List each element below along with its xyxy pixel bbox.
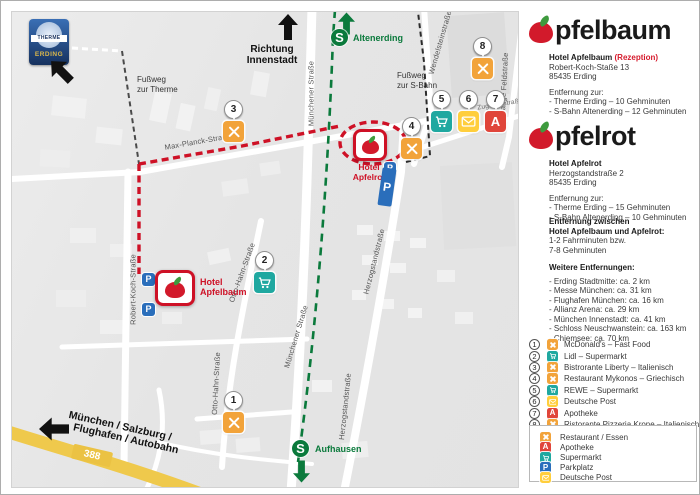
parking-icon: P [142,303,155,316]
legend-row: P Parkplatz [540,463,696,473]
pharmacy-icon: A [485,111,506,132]
mail-icon [458,111,479,132]
street-label: Robert-Koch-Straße [129,245,138,335]
sbahn-station-altenerding-label: Altenerding [353,33,403,43]
mail-icon [540,472,551,483]
footpath-therme-dashed-2 [122,51,139,164]
legend-row: 7 A Apotheke [529,407,700,418]
poi-number-pin: 1 [224,391,243,410]
restaurant-icon [223,412,244,433]
street-label: Münchener Straße [307,49,316,139]
hotel-city: 85435 Erding [549,72,699,82]
legend-row: 3 Bistrorante Liberty – Italienisch [529,362,700,373]
distance-item: - Erding Stadtmitte: ca. 2 km [549,277,699,287]
poi-marker-3: 3 [223,100,244,142]
map-type-legend: Restaurant / Essen A Apotheke Supermarkt… [529,425,697,482]
legend-row: 2 Lidl – Supermarkt [529,350,700,361]
poi-marker-8: 8 [472,37,493,79]
apple-icon [362,137,379,154]
sidebar-numbered-legend: 1 McDonald's – Fast Food 2 Lidl – Superm… [529,339,700,430]
legend-row: 1 McDonald's – Fast Food [529,339,700,350]
apfelbaum-logo-text: pfelbaum [555,17,671,43]
more-distances-heading: Weitere Entfernungen: [549,263,699,273]
hotel-name: Hotel Apfelbaum [549,53,612,62]
therme-logo-text: THERME [31,35,67,42]
hotel-map-flyer: THERME ERDING Richtung Innenstadt S Alte… [0,0,700,495]
sbahn-badge-altenerding: S [331,29,348,46]
legend-row: 5 REWE – Supermarkt [529,385,700,396]
poi-number-pin: 5 [432,90,451,109]
hotel-apfelbaum-label: Hotel Apfelbaum [200,277,247,297]
apple-icon [529,17,553,43]
restaurant-icon [401,138,422,159]
poi-marker-2: 2 [254,251,275,293]
rezeption-tag: (Rezeption) [615,53,659,62]
arrow-autobahn-icon [39,417,69,441]
poi-number-pin: 4 [402,117,421,136]
sidebar-between-section: Entfernung zwischen Hotel Apfelbaum und … [549,217,699,255]
sidebar-distances-section: Weitere Entfernungen: - Erding Stadtmitt… [549,263,699,343]
distance-item: - München Innenstadt: ca. 41 km [549,315,699,325]
parking-icon: P [142,273,155,286]
restaurant-icon [540,432,551,443]
arrow-innenstadt-icon [278,14,298,40]
mail-icon [547,396,558,407]
apfelrot-logo-text: pfelrot [555,123,636,149]
sidebar-apfelbaum-section: pfelbaum Hotel Apfelbaum (Rezeption) Rob… [529,17,699,116]
poi-number-pin: 8 [473,37,492,56]
distance-item: - Therme Erding – 10 Gehminuten [549,97,699,107]
poi-number-pin: 3 [224,100,243,119]
restaurant-icon [547,373,558,384]
restaurant-icon [547,362,558,373]
poi-marker-7: 7 A [485,90,506,132]
pharmacy-icon: A [547,408,558,419]
map-buildings [40,12,517,459]
hotel-apfelrot-marker [353,129,387,161]
poi-marker-4: 4 [401,117,422,159]
hotel-address: Herzogstandstraße 2 [549,169,699,179]
sidebar-apfelrot-section: pfelrot Hotel Apfelrot Herzogstandstraße… [529,123,699,222]
restaurant-icon [223,121,244,142]
legend-row: 6 Deutsche Post [529,396,700,407]
shopping-cart-icon [547,385,558,396]
apfelbaum-logo: pfelbaum [529,17,699,43]
legend-row: Supermarkt [540,452,696,462]
poi-number-pin: 7 [486,90,505,109]
shopping-cart-icon [547,351,558,362]
apple-icon [529,123,553,149]
poi-marker-5: 5 [431,90,452,132]
distance-item: - Flughafen München: ca. 16 km [549,296,699,306]
apple-icon [165,278,185,298]
shopping-cart-icon [431,111,452,132]
distance-heading: Entfernung zur: [549,194,699,204]
footpath-therme-dashed [72,48,122,51]
distance-heading: Entfernung zur: [549,88,699,98]
distance-item: - Schloss Neuschwanstein: ca. 163 km [549,324,699,334]
map-area: THERME ERDING Richtung Innenstadt S Alte… [11,11,519,488]
distance-item: - Messe München: ca. 31 km [549,286,699,296]
legend-row: 4 Restaurant Mykonos – Griechisch [529,373,700,384]
poi-number-pin: 2 [255,251,274,270]
sbahn-arrow-south-icon [293,460,310,483]
hotel-apfelbaum-marker [155,270,195,306]
legend-row: Restaurant / Essen [540,432,696,442]
apfelrot-logo: pfelrot [529,123,699,149]
sbahn-badge-aufhausen: S [292,440,309,457]
distance-item: - S-Bahn Altenerding – 12 Gehminuten [549,107,699,117]
hotel-city: 85435 Erding [549,178,699,188]
poi-marker-6: 6 [458,90,479,132]
poi-marker-1: 1 [223,391,244,433]
legend-row: Deutsche Post [540,473,696,483]
restaurant-icon [547,339,558,350]
distance-item: - Therme Erding – 15 Gehminuten [549,203,699,213]
poi-number-pin: 6 [459,90,478,109]
hotel-address: Robert-Koch-Staße 13 [549,63,699,73]
legend-row: A Apotheke [540,442,696,452]
hotel-name: Hotel Apfelrot [549,159,699,169]
direction-innenstadt-label: Richtung Innenstadt [237,44,307,66]
restaurant-icon [472,58,493,79]
footpath-therme-label: Fußweg zur Therme [137,75,178,94]
distance-item: - Allianz Arena: ca. 29 km [549,305,699,315]
shopping-cart-icon [254,272,275,293]
